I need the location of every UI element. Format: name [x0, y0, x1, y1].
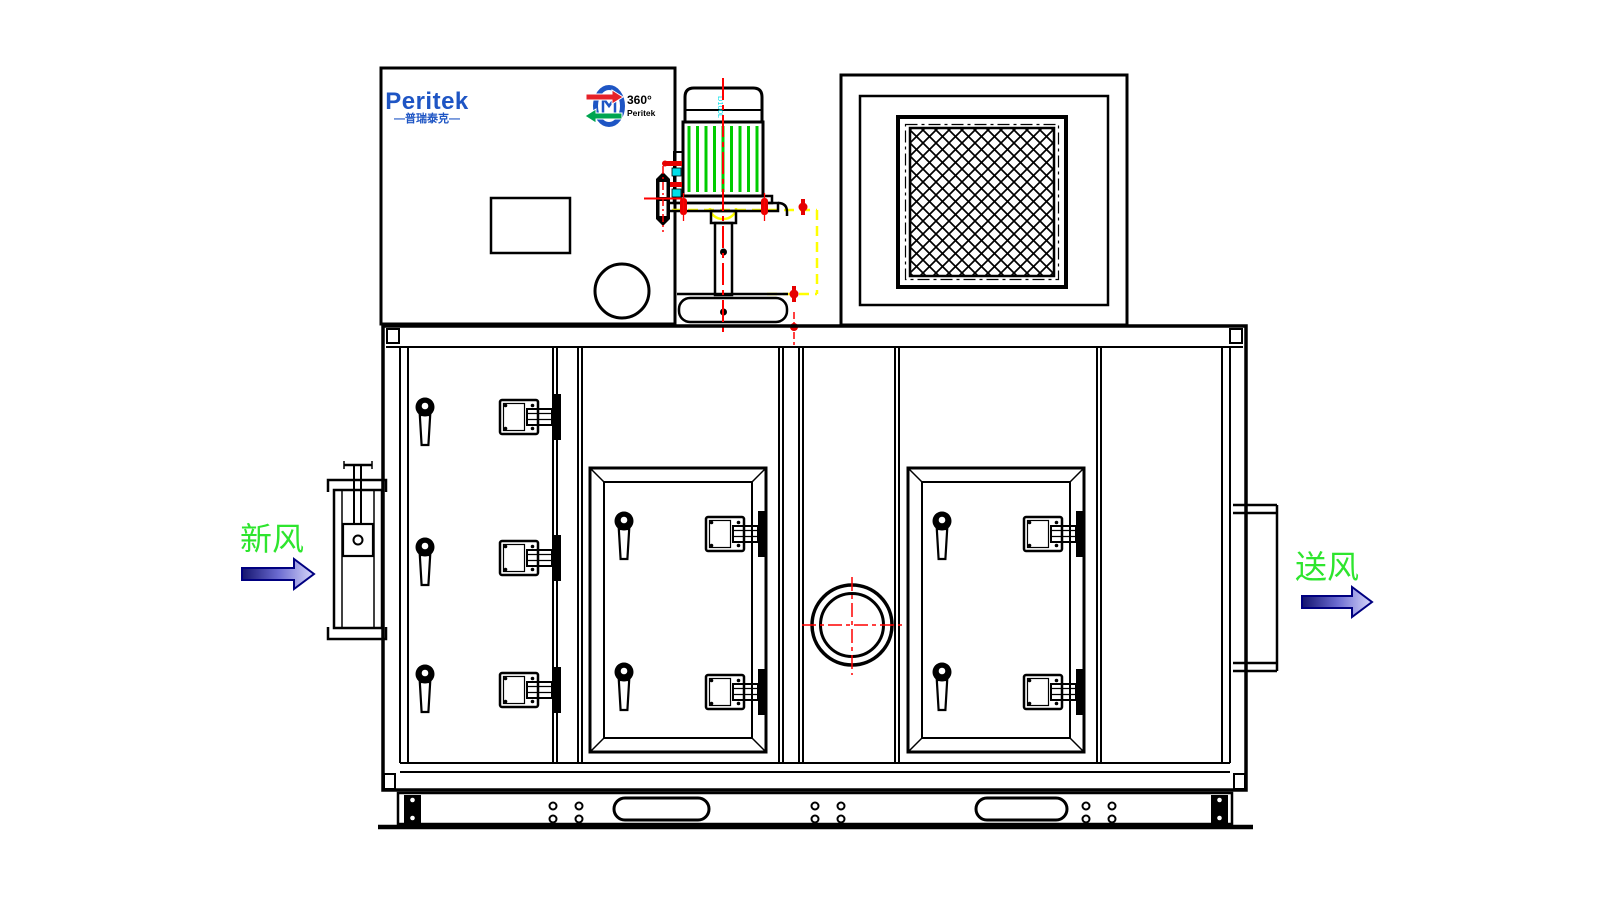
airflow-annotations: 新风 送风 — [240, 521, 1372, 617]
actuator-box — [343, 524, 373, 556]
control-box-section: Peritek —普瑞泰克— 360° Peritek — [381, 68, 675, 324]
brand-logo-chinese: —普瑞泰克— — [394, 111, 460, 125]
door-handle — [615, 663, 634, 711]
filter-mesh — [910, 128, 1054, 276]
base-rail — [378, 793, 1253, 827]
door-handle — [933, 512, 952, 560]
cad-drawing-canvas: Peritek —普瑞泰克— 360° Peritek — [0, 0, 1613, 897]
fan-housing-top — [679, 298, 787, 322]
actuator-shaft — [354, 536, 363, 545]
logo-360-brand: Peritek — [627, 108, 656, 118]
door-handle — [416, 538, 435, 586]
right-access-door — [908, 468, 1085, 752]
brand-logo-text: Peritek — [385, 88, 469, 115]
door-latch — [500, 394, 561, 440]
corner-bracket — [384, 774, 395, 789]
door-handle — [933, 663, 952, 711]
corner-bracket — [1230, 329, 1242, 343]
door-handle — [416, 398, 435, 446]
mount-elbow — [778, 203, 787, 216]
fresh-air-arrow-icon — [242, 559, 314, 589]
corner-bracket — [387, 329, 399, 343]
motor-assembly: D100L — [644, 78, 817, 345]
cabinet — [383, 326, 1246, 790]
filter-section — [841, 75, 1127, 325]
supply-air-label: 送风 — [1295, 549, 1359, 585]
forklift-slot — [976, 798, 1067, 820]
dehumidifier-front-elevation: Peritek —普瑞泰克— 360° Peritek — [0, 0, 1613, 897]
panel-dividers — [553, 347, 1101, 763]
cabinet-outline — [383, 326, 1246, 790]
fresh-air-damper — [328, 461, 386, 639]
left-access-panel — [416, 394, 562, 713]
door-hinge — [706, 511, 767, 557]
supply-duct-flange — [1233, 505, 1277, 671]
door-latch — [500, 535, 561, 581]
door-handle — [615, 512, 634, 560]
door-handle — [416, 665, 435, 713]
sight-glass-crosshair — [802, 577, 903, 675]
middle-access-door — [590, 468, 767, 752]
control-panel-cutout — [491, 198, 570, 253]
base-corner-bracket — [404, 795, 421, 823]
forklift-slot — [614, 798, 709, 820]
supply-air-arrow-icon — [1302, 587, 1372, 617]
base-corner-bracket — [1211, 795, 1228, 823]
damper-body — [334, 490, 382, 628]
door-hinge — [706, 669, 767, 715]
corner-bracket — [1234, 774, 1245, 789]
sight-glass — [802, 577, 903, 675]
logo-360-degrees: 360° — [627, 93, 652, 107]
door-hinge — [1024, 669, 1085, 715]
logo-360: 360° Peritek — [585, 88, 656, 125]
fresh-air-label: 新风 — [240, 521, 304, 557]
door-latch — [500, 667, 561, 713]
cable-gland-hole — [595, 264, 649, 318]
door-hinge — [1024, 511, 1085, 557]
